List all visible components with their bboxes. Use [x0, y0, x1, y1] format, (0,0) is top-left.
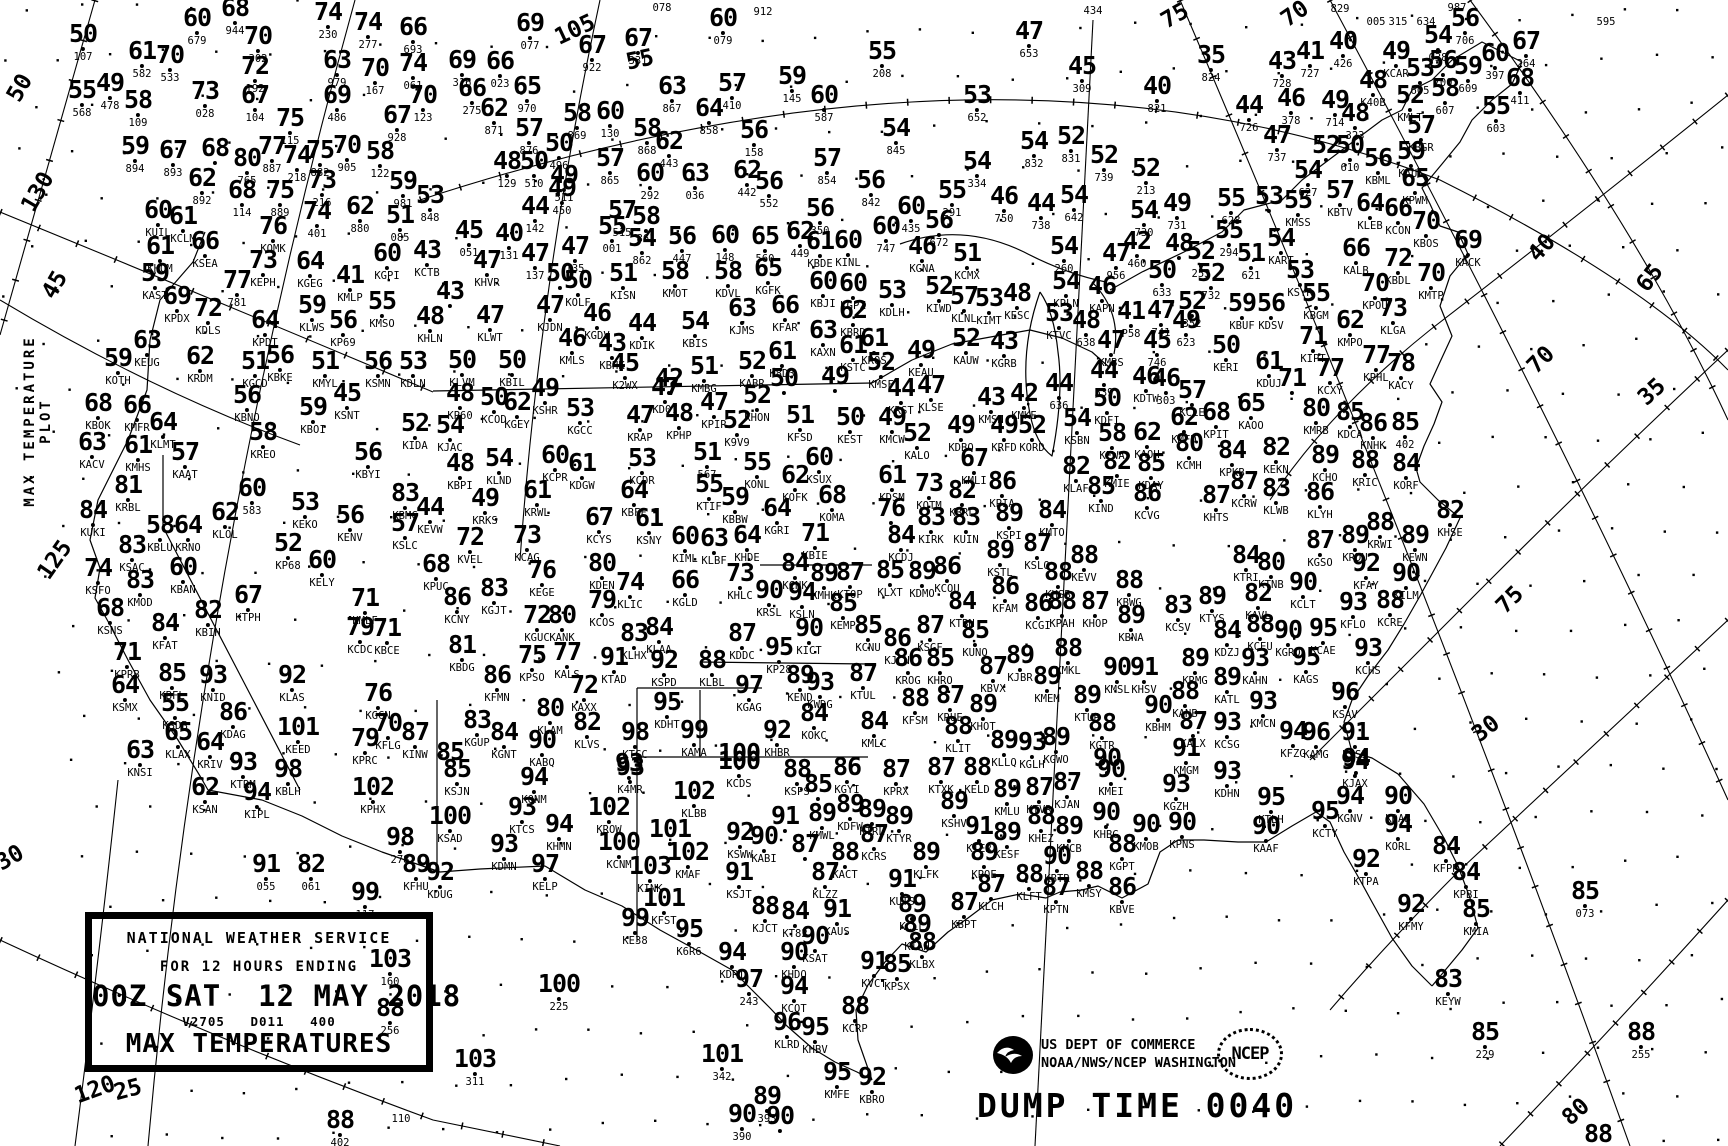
station-temp: 84 [1218, 437, 1246, 462]
station-id: KGCC [567, 426, 592, 437]
station-plot: 99KAMA [680, 717, 708, 759]
station-plot: 80KCMH [1175, 430, 1203, 472]
small-station-number: 315 [1389, 16, 1408, 28]
station-id: 738 [1032, 221, 1051, 232]
station-temp: 52 [274, 530, 302, 555]
station-id: KEVW [417, 525, 442, 536]
station-temp: 55 [1302, 280, 1330, 305]
station-plot: 56KENV [336, 502, 364, 544]
station-temp: 57 [950, 283, 978, 308]
station-plot: 49KRKS [471, 485, 499, 527]
station-temp: 56 [1364, 145, 1392, 170]
station-plot: 45K2WX [611, 350, 639, 392]
station-temp: 55 [868, 38, 896, 63]
legend-version-codes: V2705 D011 400 [92, 1014, 426, 1029]
station-dot [1290, 391, 1294, 395]
station-id: KCOS [589, 618, 614, 629]
station-id: 460 [1128, 259, 1147, 270]
station-id: KTVC [1046, 331, 1071, 342]
station-temp: 67 [960, 445, 988, 470]
station-temp: 93 [1241, 645, 1269, 670]
station-plot: 78KACY [1387, 350, 1415, 392]
station-temp: 58 [1431, 75, 1459, 100]
station-temp: 35 [1197, 42, 1225, 67]
station-temp: 94 [1384, 811, 1412, 836]
station-temp: 88 [326, 1107, 354, 1132]
station-temp: 72 [194, 295, 222, 320]
station-temp: 65 [164, 719, 192, 744]
station-temp: 65 [1401, 165, 1429, 190]
station-temp: 86 [894, 645, 922, 670]
station-temp: 102 [352, 774, 394, 799]
station-id: 621 [1242, 271, 1261, 282]
station-plot: 84KOKC [800, 700, 828, 742]
station-temp: 57 [1407, 112, 1435, 137]
station-plot: 90KMEI [1097, 756, 1125, 798]
station-plot: 87KGSO [1306, 527, 1334, 569]
station-id: KFZG [1280, 749, 1305, 760]
station-plot: 89KTUP [1073, 682, 1101, 724]
station-plot: 70167 [361, 55, 389, 97]
station-temp: 47 [1263, 122, 1291, 147]
station-id: KGLH [1019, 760, 1044, 771]
station-plot: 90390 [728, 1101, 756, 1143]
station-id: KFHU [403, 882, 428, 893]
station-plot: 47KHVR [473, 247, 501, 289]
station-id: KDHN [1214, 789, 1239, 800]
station-id: 334 [968, 179, 987, 190]
station-id: KLWB [1263, 506, 1288, 517]
station-temp: 90 [1043, 843, 1071, 868]
station-plot: 58KBLU [146, 512, 174, 554]
station-temp: 56 [1451, 5, 1479, 30]
station-plot: 101342 [701, 1041, 743, 1083]
station-id: KFAR [772, 323, 797, 334]
station-temp: 80 [1302, 395, 1330, 420]
station-id: 533 [161, 73, 180, 84]
station-id: KPRX [883, 787, 908, 798]
station-temp: 89 [808, 800, 836, 825]
station-temp: 66 [123, 392, 151, 417]
station-temp: 52 [925, 273, 953, 298]
station-id: KTAD [601, 675, 626, 686]
station-id: KIDA [402, 441, 427, 452]
station-plot: 60KBJI [809, 268, 837, 310]
station-plot: 54642 [1060, 182, 1088, 224]
station-temp: 95 [1311, 798, 1339, 823]
station-plot: 83KUIN [952, 504, 980, 546]
station-temp: 53 [878, 277, 906, 302]
station-plot: 49 [821, 363, 849, 394]
station-id: KFAM [992, 604, 1017, 615]
station-temp: 49 [878, 404, 906, 429]
station-plot: 95KCTY [1311, 798, 1339, 840]
station-plot: 60130 [596, 98, 624, 140]
station-plot: 44KDIK [628, 310, 656, 352]
station-temp: 58 [661, 258, 689, 283]
station-plot: 84KORF [1392, 450, 1420, 492]
station-temp: 90 [766, 1103, 794, 1128]
station-temp: 76 [528, 557, 556, 582]
station-id: KOKC [801, 731, 826, 742]
station-temp: 83 [126, 567, 154, 592]
station-plot: 55603 [1482, 93, 1510, 135]
station-plot: 74230 [314, 0, 342, 41]
station-plot: 46303 [1152, 365, 1180, 407]
station-id: 397 [1486, 71, 1505, 82]
station-id: KCNU [855, 643, 880, 654]
station-plot: 54KSBN [1063, 405, 1091, 447]
station-plot: 56KSMN [364, 348, 392, 390]
station-id: KCRP [842, 1024, 867, 1035]
station-temp: 49 [1172, 307, 1200, 332]
station-temp: 81 [114, 472, 142, 497]
station-plot: 90KICT [795, 615, 823, 657]
station-plot: 100KCDS [718, 748, 760, 790]
station-id: KDSV [1258, 321, 1283, 332]
station-temp: 83 [917, 504, 945, 529]
station-id: KELP [532, 882, 557, 893]
station-temp: 71 [801, 520, 829, 545]
station-id: KCDS [726, 779, 751, 790]
station-plot: 66KMFR [123, 392, 151, 434]
station-id: 603 [1487, 124, 1506, 135]
station-plot: 70533 [156, 42, 184, 84]
station-temp: 58 [1098, 420, 1126, 445]
station-temp: 45 [611, 350, 639, 375]
station-id: KTRL [859, 827, 884, 838]
station-plot: 82KHSE [1436, 497, 1464, 539]
noaa-seagull-icon [993, 1036, 1033, 1074]
station-temp: 86 [1359, 410, 1387, 435]
station-temp: 62 [1336, 307, 1364, 332]
station-id: KMTP [1418, 291, 1443, 302]
station-temp: 88 [908, 929, 936, 954]
station-temp: 74 [314, 0, 342, 24]
station-temp: 51 [609, 260, 637, 285]
station-temp: 64 [111, 672, 139, 697]
station-id: 331 [629, 56, 648, 67]
station-temp: 101 [701, 1041, 743, 1066]
station-id: KBYI [355, 470, 380, 481]
station-temp: 52 [743, 382, 771, 407]
station-plot: 94KIPL [243, 779, 271, 821]
station-temp: 65 [513, 73, 541, 98]
station-temp: 40 [495, 220, 523, 245]
station-id: 411 [1511, 96, 1530, 107]
station-id: KCSG [1214, 740, 1239, 751]
station-temp: 47 [521, 240, 549, 265]
station-plot: 71KBCE [373, 615, 401, 657]
station-plot: 86KLYH [1306, 479, 1334, 521]
station-temp: 89 [1311, 442, 1339, 467]
station-temp: 55 [695, 471, 723, 496]
station-temp: 91 [725, 859, 753, 884]
station-temp: 47 [561, 233, 589, 258]
station-temp: 53 [975, 285, 1003, 310]
station-id: 568 [73, 108, 92, 119]
station-id: KFLO [1340, 620, 1365, 631]
station-temp: 44 [1235, 92, 1263, 117]
station-id: 342 [713, 1072, 732, 1083]
station-temp: 88 [963, 754, 991, 779]
station-id: KLWT [477, 333, 502, 344]
station-id: 036 [686, 191, 705, 202]
station-plot: 72KDLS [194, 295, 222, 337]
station-id: 867 [663, 104, 682, 115]
station-temp: 85 [1571, 878, 1599, 903]
station-id: KRIV [197, 760, 222, 771]
station-id: KAGS [1293, 675, 1318, 686]
station-temp: 94 [1341, 748, 1369, 773]
station-id: KBVE [1109, 905, 1134, 916]
station-temp: 88 [1015, 861, 1043, 886]
station-plot: 92KBRO [858, 1064, 886, 1106]
station-id: KTUL [850, 691, 875, 702]
station-plot: 44726 [1235, 92, 1263, 134]
station-id: KORD [1019, 443, 1044, 454]
dept-of-commerce-lines: US DEPT OF COMMERCE NOAA/NWS/NCEP WASHIN… [1041, 1036, 1236, 1072]
station-plot: 95KHBV [801, 1014, 829, 1056]
station-plot: 58KMOT [661, 258, 689, 300]
station-temp: 99 [680, 717, 708, 742]
station-temp: 63 [728, 295, 756, 320]
station-id: KCRE [1377, 618, 1402, 629]
station-temp: 73 [915, 470, 943, 495]
station-plot: 88KGPT [1108, 831, 1136, 873]
station-temp: 100 [718, 748, 760, 773]
station-temp: 44 [521, 193, 549, 218]
station-temp: 44 [416, 494, 444, 519]
station-id: 478 [101, 101, 120, 112]
station-temp: 87 [401, 719, 429, 744]
station-temp: 89 [995, 500, 1023, 525]
station-temp: 58 [249, 419, 277, 444]
station-temp: 91 [965, 813, 993, 838]
station-temp: 82 [573, 709, 601, 734]
station-id: 142 [526, 224, 545, 235]
station-temp: 95 [801, 1014, 829, 1039]
station-id: KPSX [884, 982, 909, 993]
station-id: KELY [309, 578, 334, 589]
station-id: KLAF [1063, 484, 1088, 495]
station-plot: 94KGNV [1336, 783, 1364, 825]
station-plot: 88KLBX [908, 929, 936, 971]
station-temp: 98 [621, 719, 649, 744]
station-id: KUKI [80, 528, 105, 539]
station-temp: 94 [788, 579, 816, 604]
station-temp: 63 [681, 160, 709, 185]
station-id: KBIS [682, 339, 707, 350]
station-id: KEMP [830, 621, 855, 632]
station-temp: 89 [1042, 724, 1070, 749]
station-temp: 40 [1143, 73, 1171, 98]
station-id: KLHX [621, 651, 646, 662]
station-temp: 91 [252, 851, 280, 876]
station-plot: 74277 [354, 9, 382, 51]
station-temp: 90 [795, 615, 823, 640]
station-id: 309 [1073, 84, 1092, 95]
station-temp: 86 [988, 468, 1016, 493]
station-temp: 71 [1278, 365, 1306, 390]
station-id: KCRS [861, 852, 886, 863]
station-id: KGWO [1043, 755, 1068, 766]
station-temp: 40 [1329, 28, 1357, 53]
station-temp: 82 [194, 597, 222, 622]
station-id: KMCW [879, 435, 904, 446]
station-temp: 98 [386, 824, 414, 849]
station-temp: 60 [709, 5, 737, 30]
station-temp: 85 [876, 557, 904, 582]
station-temp: 78 [1387, 350, 1415, 375]
station-plot: 85KPSX [883, 951, 911, 993]
station-dot [1177, 256, 1181, 260]
station-id: 638 [1077, 338, 1096, 349]
station-plot: 58607 [1431, 75, 1459, 117]
station-plot: 90KGRD [1274, 617, 1302, 659]
station-temp: 89 [885, 803, 913, 828]
station-temp: 85 [443, 756, 471, 781]
station-temp: 52 [952, 325, 980, 350]
station-dot [816, 797, 820, 801]
station-temp: 54 [1294, 157, 1322, 182]
station-id: KVEL [457, 555, 482, 566]
station-plot: 77KCXY [1316, 355, 1344, 397]
station-plot: 62871 [480, 95, 508, 137]
legend-box: NATIONAL WEATHER SERVICE FOR 12 HOURS EN… [85, 912, 433, 1072]
station-temp: 50 [520, 148, 548, 173]
station-temp: 87 [950, 889, 978, 914]
station-temp: 58 [124, 87, 152, 112]
station-plot: 53KIMT [975, 285, 1003, 327]
station-id: 858 [700, 126, 719, 137]
station-plot: 89KTRL [858, 796, 886, 838]
station-temp: 87 [936, 682, 964, 707]
station-temp: 67 [383, 102, 411, 127]
station-plot: 73KEPH [249, 247, 277, 289]
station-temp: 62 [839, 297, 867, 322]
station-id: KFLG [375, 741, 400, 752]
station-id: KEST [837, 435, 862, 446]
station-plot: 75KPSO [518, 642, 546, 684]
station-plot: 58KREO [249, 419, 277, 461]
station-temp: 64 [1356, 190, 1384, 215]
station-id: KP28 [766, 665, 791, 676]
station-temp: 88 [1027, 803, 1055, 828]
station-temp: 55 [938, 177, 966, 202]
station-id: KSAD [437, 834, 462, 845]
station-id: 109 [129, 118, 148, 129]
station-plot: 90 [766, 1103, 794, 1134]
station-temp: 51 [1237, 240, 1265, 265]
station-plot: 85KLXT [876, 557, 904, 599]
station-temp: 54 [1424, 22, 1452, 47]
station-id: 854 [818, 176, 837, 187]
station-plot: 44KEVW [416, 494, 444, 536]
station-plot: 70905 [333, 132, 361, 174]
station-temp: 85 [1462, 896, 1490, 921]
station-plot: 82061 [297, 851, 325, 893]
station-plot: 55KMSO [368, 288, 396, 330]
station-temp: 82 [1262, 434, 1290, 459]
station-id: 880 [351, 224, 370, 235]
station-id: KCMH [1176, 461, 1201, 472]
station-id: 410 [723, 101, 742, 112]
station-temp: 46 [1277, 85, 1305, 110]
station-temp: 86 [1108, 874, 1136, 899]
legend-subtitle: FOR 12 HOURS ENDING [92, 959, 426, 975]
station-id: KAHN [1242, 676, 1267, 687]
station-temp: 68 [1506, 65, 1534, 90]
station-temp: 49 [947, 412, 975, 437]
station-temp: 92 [650, 647, 678, 672]
station-id: KPSO [519, 673, 544, 684]
station-plot: 82KEKN [1262, 434, 1290, 476]
station-id: KMSY [1076, 889, 1101, 900]
station-temp: 64 [763, 495, 791, 520]
station-temp: 73 [249, 247, 277, 272]
station-plot: 74KSFO [84, 555, 112, 597]
station-id: 706 [1456, 36, 1475, 47]
station-temp: 55 [1217, 185, 1245, 210]
station-temp: 90 [1097, 756, 1125, 781]
station-temp: 87 [791, 831, 819, 856]
station-id: 028 [196, 109, 215, 120]
legend-agency-title: NATIONAL WEATHER SERVICE [92, 929, 426, 947]
station-plot: 61KBDE [806, 228, 834, 270]
station-id: KIML [672, 554, 697, 565]
station-temp: 89 [993, 776, 1021, 801]
station-temp: 59 [389, 168, 417, 193]
station-id: 145 [783, 94, 802, 105]
station-temp: 57 [515, 115, 543, 140]
station-id: 122 [371, 169, 390, 180]
station-plot: 48KHLN [416, 303, 444, 345]
station-plot: 90KBHM [1144, 692, 1172, 734]
station-id: KMLS [559, 356, 584, 367]
station-id: KMSL [1104, 685, 1129, 696]
station-plot: 93K4MR [616, 754, 644, 796]
station-plot: 93KFLO [1339, 589, 1367, 631]
station-temp: 51 [386, 202, 414, 227]
station-plot: 53848 [416, 182, 444, 224]
station-plot: 79KPRC [351, 725, 379, 767]
station-plot: 86KBVE [1108, 874, 1136, 916]
station-plot: 74401 [303, 198, 331, 240]
station-temp: 46 [1088, 273, 1116, 298]
station-id: 023 [491, 79, 510, 90]
station-id: KSEA [192, 259, 217, 270]
station-plot: 88255 [1627, 1019, 1655, 1061]
station-plot: 68KPUC [422, 551, 450, 593]
station-temp: 47 [917, 372, 945, 397]
station-plot: 77781 [223, 267, 251, 309]
station-temp: 89 [858, 796, 886, 821]
station-plot: 55KTIF [695, 471, 723, 513]
station-temp: 59 [104, 345, 132, 370]
station-temp: 91 [771, 803, 799, 828]
station-id: KLVS [574, 740, 599, 751]
station-temp: 92 [426, 859, 454, 884]
station-temp: 94 [243, 779, 271, 804]
station-temp: 84 [490, 719, 518, 744]
legend-product-title: MAX TEMPERATURES [92, 1029, 426, 1059]
station-id: KLGA [1380, 326, 1405, 337]
station-id: 623 [1177, 338, 1196, 349]
station-temp: 60 [711, 222, 739, 247]
station-temp: 73 [726, 560, 754, 585]
station-id: KGRD [1275, 648, 1300, 659]
